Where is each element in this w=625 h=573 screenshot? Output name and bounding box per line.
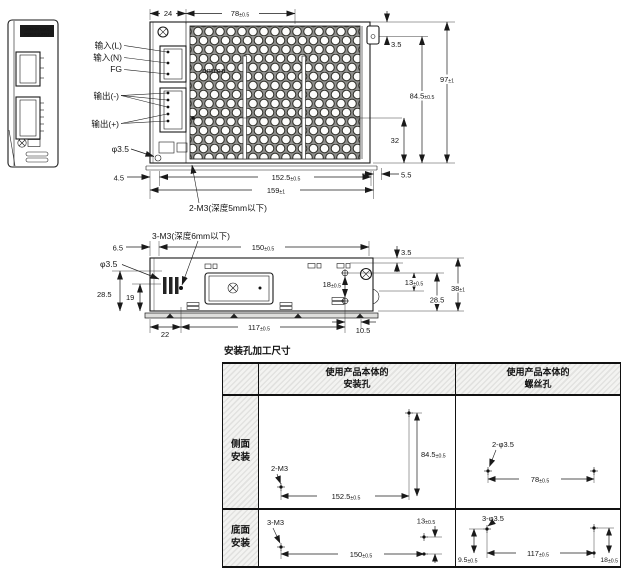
vent-divider-slot xyxy=(302,56,306,159)
hole-marker xyxy=(483,525,491,533)
mounting-hole-table: 使用产品本体的 安装孔 使用产品本体的 螺丝孔 侧面 安装 2-M3 xyxy=(222,362,621,568)
cell-side-mounting-holes: 2-M3 152.5±0.5 xyxy=(259,395,456,509)
mounting-hook-tab xyxy=(367,26,379,44)
side-view: OMRON S8FS POWER SUPPLY xyxy=(8,20,58,167)
cell-label-2-phi35: 2-φ3.5 xyxy=(492,440,514,449)
vent-divider-slot xyxy=(243,56,247,159)
cell-label-3-m3: 3-M3 xyxy=(267,518,284,527)
label-input-n: 输入(N) xyxy=(93,53,122,63)
callout-2-m3: 2-M3(深度5mm以下) xyxy=(189,203,267,213)
product-label-line2: POWER SUPPLY xyxy=(24,33,50,37)
center-cutout xyxy=(205,273,273,304)
dim-19: 19 xyxy=(126,293,134,302)
bottom-flange xyxy=(146,166,377,170)
mounting-table-section: 安装孔加工尺寸 使用产品本体的 安装孔 使用产品本体的 螺丝孔 侧面 安装 xyxy=(222,343,622,568)
dim-6-5: 6.5 xyxy=(113,244,123,253)
hole-marker xyxy=(590,524,598,532)
bottom-view-body xyxy=(145,258,379,318)
side-connector-lower xyxy=(16,97,44,139)
side-connector-upper xyxy=(16,52,44,86)
output-terminal-block xyxy=(160,88,186,132)
m3-hole-marker xyxy=(179,286,183,290)
dim-4-5: 4.5 xyxy=(114,174,124,183)
vent-slot xyxy=(175,277,179,294)
vent-slot xyxy=(169,277,173,294)
table-corner-cell xyxy=(223,363,259,395)
label-phi35: φ3.5 xyxy=(112,144,130,154)
callout-3-m3: 3-M3(深度6mm以下) xyxy=(152,231,230,241)
base-strip xyxy=(145,313,378,318)
label-fg: FG xyxy=(110,64,122,74)
dim-5-5: 5.5 xyxy=(401,171,411,180)
dim-32: 32 xyxy=(391,136,399,145)
cell-label-3-phi35: 3-φ3.5 xyxy=(482,514,504,523)
col-header-mounting-holes: 使用产品本体的 安装孔 xyxy=(259,363,456,395)
hole-marker xyxy=(484,467,492,475)
panel-screw-icon xyxy=(158,27,168,37)
dim-22: 22 xyxy=(161,330,169,339)
cell-bottom-screw-holes: 3-φ3.5 9.5±0.5 xyxy=(456,509,621,567)
cell-dim-84-5: 84.5±0.5 xyxy=(421,450,446,460)
label-output-plus: 输出(+) xyxy=(91,119,119,129)
chassis-screw-icon xyxy=(361,269,372,280)
cell-side-screw-holes: 2-φ3.5 78±0.5 xyxy=(456,395,621,509)
hole-marker xyxy=(590,467,598,475)
cell-label-2-m3: 2-M3 xyxy=(271,464,288,473)
product-label-line1: OMRON S8FS xyxy=(24,28,50,32)
dim-28-5-left: 28.5 xyxy=(97,290,112,299)
row-header-bottom-mounting: 底面 安装 xyxy=(223,509,259,567)
dim-3-5: 3.5 xyxy=(391,40,401,49)
dim-28-5-right: 28.5 xyxy=(430,296,445,305)
cell-dim-18: 18±0.5 xyxy=(600,557,618,565)
label-output-minus: 输出(-) xyxy=(94,91,120,101)
dim-10-5: 10.5 xyxy=(356,326,371,335)
hole-marker xyxy=(277,543,285,551)
col-header-screw-holes: 使用产品本体的 螺丝孔 xyxy=(456,363,621,395)
vent-honeycomb-panel xyxy=(190,26,360,159)
dimension-drawing-page: { "side_view": { "label_line1": "OMRON S… xyxy=(0,0,625,573)
top-view-body: omron xyxy=(146,22,402,170)
vent-slot xyxy=(163,277,167,294)
front-and-side-view-drawing: OMRON S8FS POWER SUPPLY omron xyxy=(0,0,625,227)
cell-dim-9-5: 9.5±0.5 xyxy=(458,557,478,565)
label-input-l: 输入(L) xyxy=(95,41,123,51)
row-header-side-mounting: 侧面 安装 xyxy=(223,395,259,509)
hole-marker xyxy=(277,483,285,491)
cell-bottom-mounting-holes: 3-M3 xyxy=(259,509,456,567)
dim-3-5-right: 3.5 xyxy=(401,248,411,257)
hole-marker xyxy=(420,533,428,541)
label-phi35-bottom: φ3.5 xyxy=(100,259,118,269)
edge-tab xyxy=(373,289,379,304)
dim-24: 24 xyxy=(164,9,172,18)
table-title: 安装孔加工尺寸 xyxy=(224,343,622,357)
hole-marker xyxy=(405,409,413,417)
bottom-view-drawing: 3-M3(深度6mm以下) 6.5 150±0.5 3.5 13±0.5 28.… xyxy=(0,227,625,345)
brand-emboss: omron xyxy=(202,68,226,75)
